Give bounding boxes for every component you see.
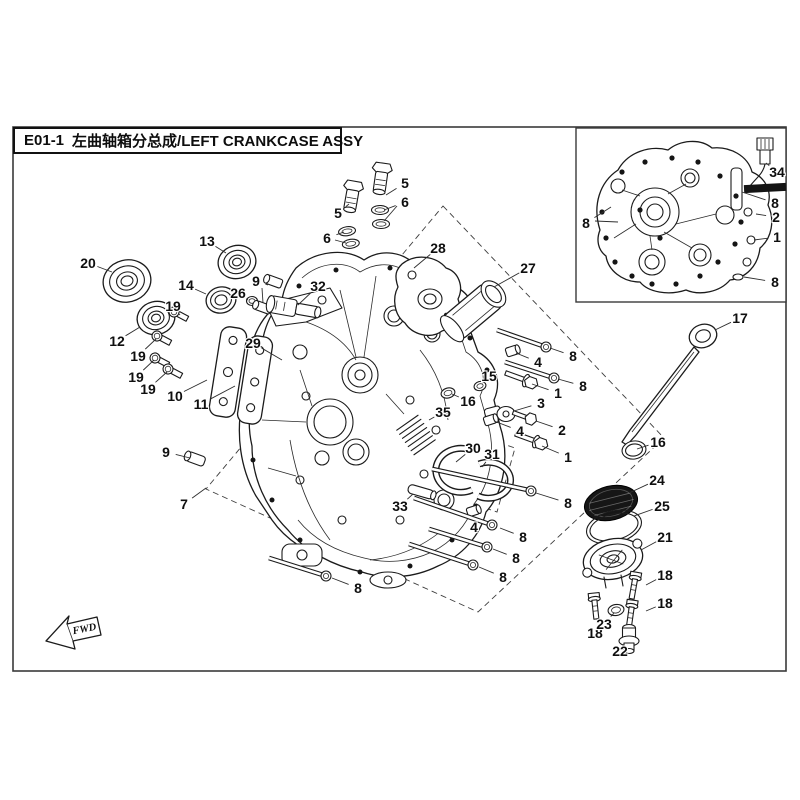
callout-number: 14 [178, 277, 194, 293]
callout-number: 8 [582, 215, 590, 231]
callout-number: 8 [354, 580, 362, 596]
callout-number: 16 [650, 434, 666, 450]
callout-number: 7 [180, 496, 188, 512]
title-code: E01-1 [24, 132, 64, 149]
callout-number: 20 [80, 255, 96, 271]
callout-number: 8 [564, 495, 572, 511]
callout-number: 32 [310, 278, 326, 294]
callout-number: 18 [657, 595, 673, 611]
callout-number: 8 [579, 378, 587, 394]
callout-number: 34 [769, 164, 785, 180]
callout-number: 11 [194, 396, 209, 412]
callout-number: 35 [435, 404, 451, 420]
callout-number: 27 [520, 260, 536, 276]
callout-number: 8 [512, 550, 520, 566]
callout-number: 33 [392, 498, 408, 514]
callout-number: 31 [484, 446, 500, 462]
callout-number: 24 [649, 472, 665, 488]
callout-number: 22 [612, 643, 628, 659]
callout-23: 23 [596, 613, 614, 632]
callout-number: 5 [401, 175, 409, 191]
callout-number: 18 [657, 567, 673, 583]
callout-number: 8 [499, 569, 507, 585]
callout-number: 19 [165, 298, 181, 314]
callout-number: 10 [167, 388, 183, 404]
callout-number: 2 [772, 209, 780, 225]
callout-number: 1 [554, 385, 562, 401]
diagram-svg: FWD 201314269121919191910112932565628271… [0, 0, 800, 800]
callout-number: 30 [465, 440, 481, 456]
callout-number: 4 [534, 354, 542, 370]
callout-number: 5 [334, 205, 342, 221]
callout-number: 3 [537, 395, 545, 411]
callout-number: 28 [430, 240, 446, 256]
callout-number: 13 [199, 233, 215, 249]
parts-diagram-page: FWD 201314269121919191910112932565628271… [0, 0, 800, 800]
callout-number: 12 [109, 333, 125, 349]
callout-number: 16 [460, 393, 476, 409]
callout-34: 34 [766, 163, 785, 180]
inset-assembled-view [576, 128, 786, 302]
callout-number: 17 [732, 310, 748, 326]
callout-22: 22 [612, 643, 628, 659]
callout-26: 26 [230, 285, 248, 301]
callout-number: 9 [252, 273, 260, 289]
callout-number: 29 [245, 335, 261, 351]
callout-number: 19 [140, 381, 156, 397]
callout-number: 6 [401, 194, 409, 210]
callout-number: 6 [323, 230, 331, 246]
callout-number: 9 [162, 444, 170, 460]
callout-number: 26 [230, 285, 246, 301]
callout-number: 8 [569, 348, 577, 364]
callout-number: 1 [773, 229, 781, 245]
callout-number: 8 [519, 529, 527, 545]
callout-number: 25 [654, 498, 670, 514]
callout-15: 15 [481, 368, 497, 384]
callout-number: 8 [771, 274, 779, 290]
callout-number: 15 [481, 368, 497, 384]
callout-number: 1 [564, 449, 572, 465]
callout-number: 23 [596, 616, 612, 632]
title-text: 左曲轴箱分总成/LEFT CRANKCASE ASSY [72, 130, 363, 151]
title-bar: E01-1 左曲轴箱分总成/LEFT CRANKCASE ASSY [13, 127, 342, 154]
callout-number: 4 [516, 423, 524, 439]
callout-number: 2 [558, 422, 566, 438]
callout-number: 4 [470, 519, 478, 535]
callout-number: 19 [130, 348, 146, 364]
callout-number: 21 [657, 529, 673, 545]
callout-19: 19 [165, 298, 181, 315]
